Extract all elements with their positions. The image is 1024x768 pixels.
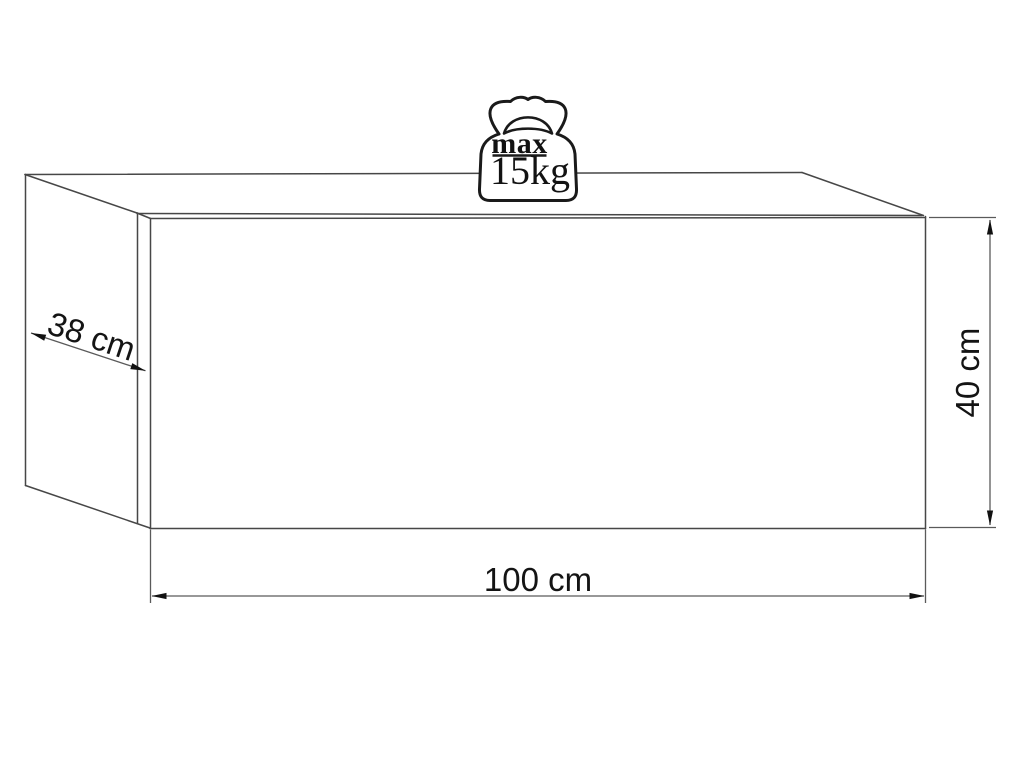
depth-dimension: 38 cm	[31, 304, 146, 370]
cabinet-top-front-edge	[137, 214, 922, 216]
cabinet-back-top-edge	[25, 173, 802, 175]
cabinet-bottom-left-edge	[26, 486, 151, 529]
cabinet-top-right-edge	[802, 173, 924, 216]
max-load-value: 15kg	[490, 148, 570, 193]
width-dimension: 100 cm	[151, 530, 926, 604]
weight-icon: max 15kg	[479, 97, 576, 200]
height-dimension: 40 cm	[929, 218, 996, 528]
height-dimension-label: 40 cm	[949, 328, 986, 418]
furniture-dimension-diagram: max 15kg 38 cm 40 cm 100 cm	[0, 0, 1024, 768]
cabinet-door-top-edge	[151, 218, 926, 219]
depth-dimension-label: 38 cm	[43, 304, 140, 367]
height-arrow-top	[987, 220, 993, 235]
height-arrow-bottom	[987, 511, 993, 526]
width-arrow-right	[910, 593, 925, 599]
width-dimension-label: 100 cm	[484, 561, 592, 598]
cabinet-top-left-edge	[25, 175, 137, 214]
cabinet-drawing	[25, 173, 926, 529]
width-arrow-left	[152, 593, 167, 599]
